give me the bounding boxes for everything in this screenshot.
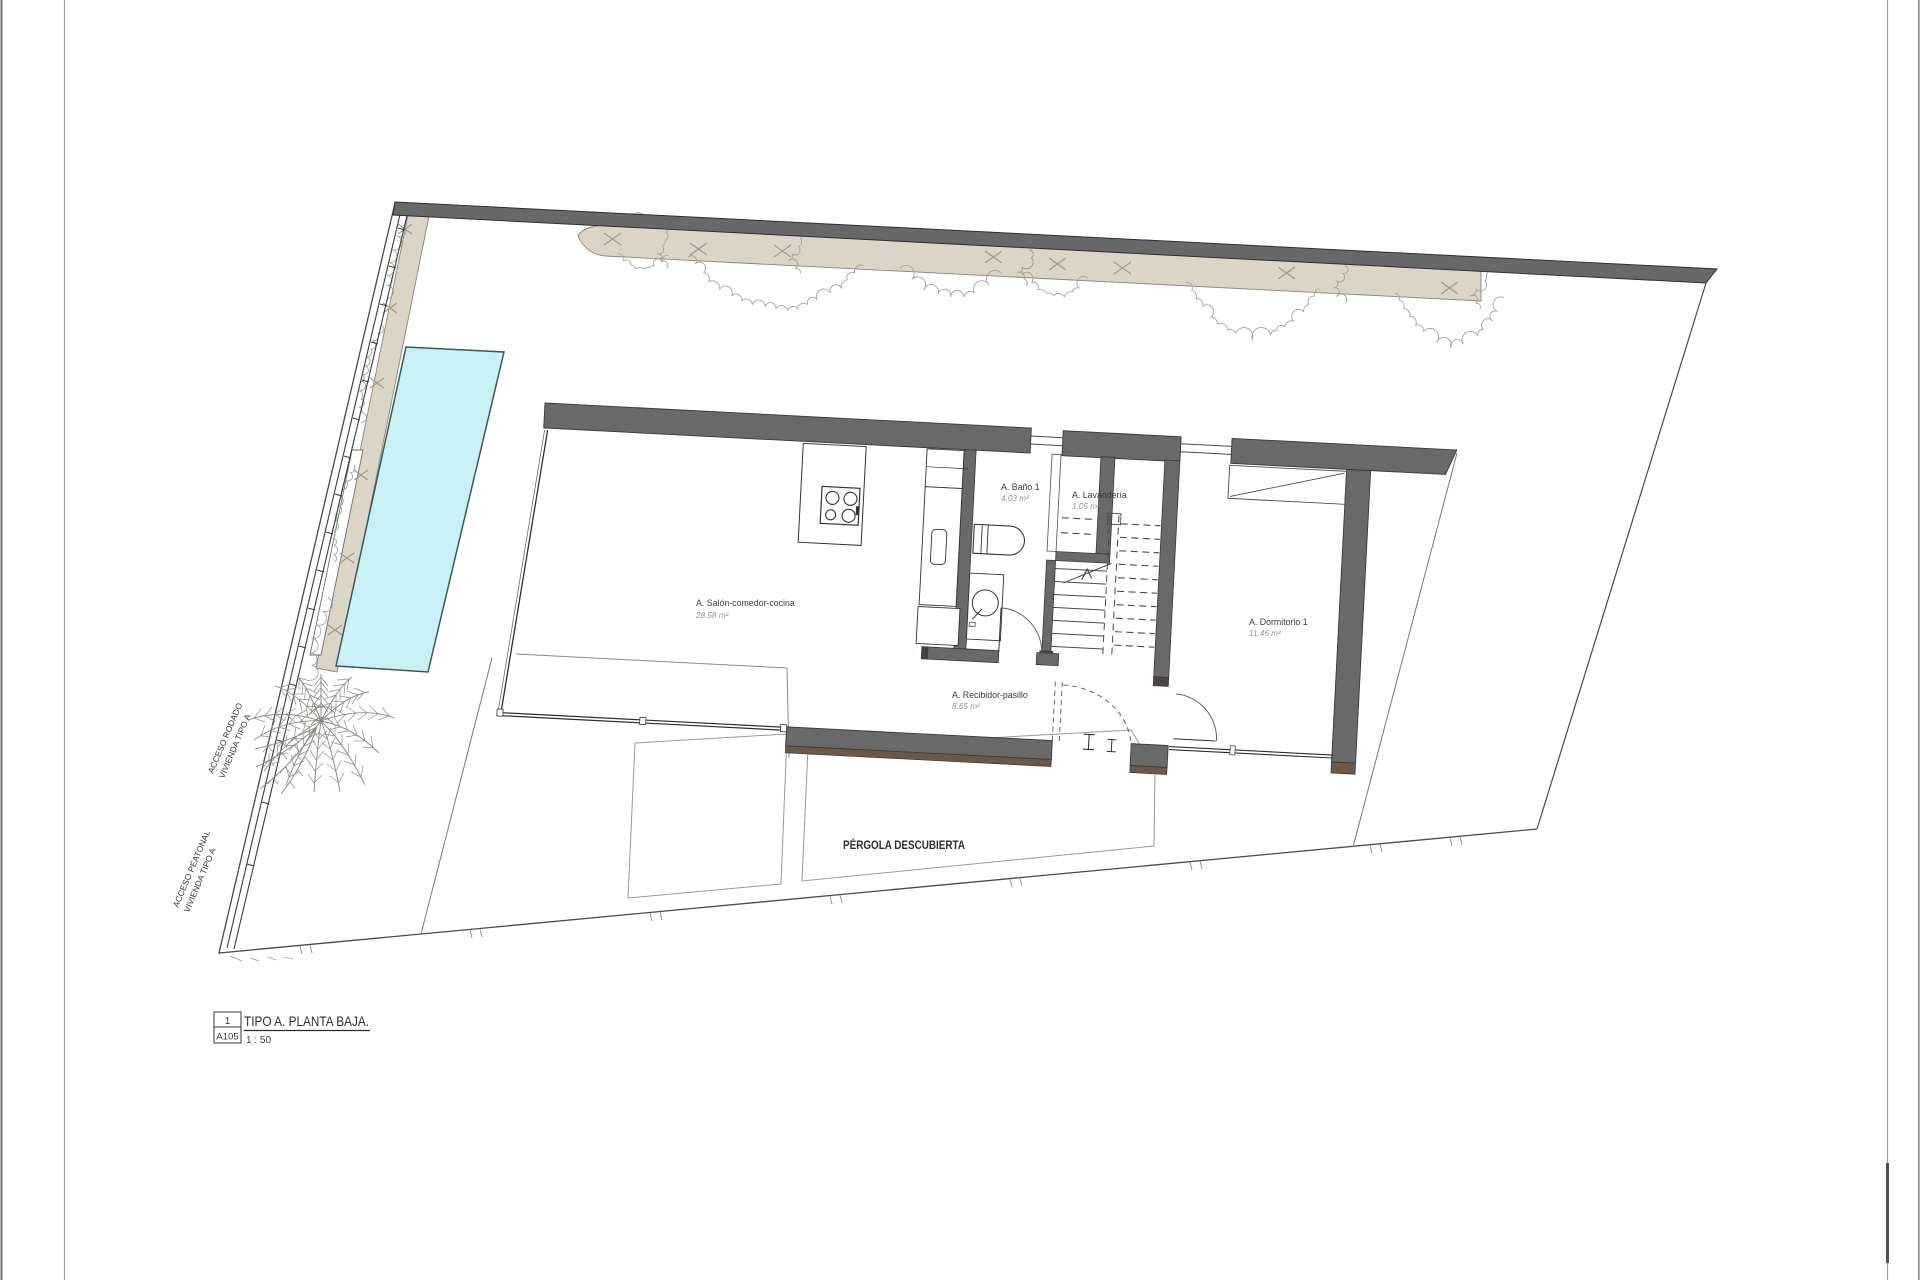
svg-text:A. Lavandería: A. Lavandería bbox=[1072, 490, 1127, 500]
svg-text:1: 1 bbox=[225, 1016, 231, 1027]
svg-text:TIPO A. PLANTA BAJA.: TIPO A. PLANTA BAJA. bbox=[244, 1013, 369, 1029]
svg-text:4.03 m²: 4.03 m² bbox=[1001, 494, 1029, 503]
svg-text:1.05 m²: 1.05 m² bbox=[1072, 502, 1100, 511]
svg-text:11.45 m²: 11.45 m² bbox=[1249, 629, 1281, 638]
svg-text:A. Baño 1: A. Baño 1 bbox=[1001, 482, 1040, 492]
svg-text:A105: A105 bbox=[216, 1032, 238, 1043]
svg-text:1 : 50: 1 : 50 bbox=[246, 1035, 271, 1046]
svg-text:A. Dormitorio 1: A. Dormitorio 1 bbox=[1249, 617, 1308, 627]
svg-text:A. Recibidor-pasillo: A. Recibidor-pasillo bbox=[952, 690, 1028, 700]
svg-text:8.65 m²: 8.65 m² bbox=[952, 702, 980, 711]
svg-text:28.58 m²: 28.58 m² bbox=[695, 611, 729, 620]
svg-text:PÉRGOLA DESCUBIERTA: PÉRGOLA DESCUBIERTA bbox=[843, 839, 965, 852]
svg-text:A. Salón-comedor-cocina: A. Salón-comedor-cocina bbox=[696, 598, 795, 608]
